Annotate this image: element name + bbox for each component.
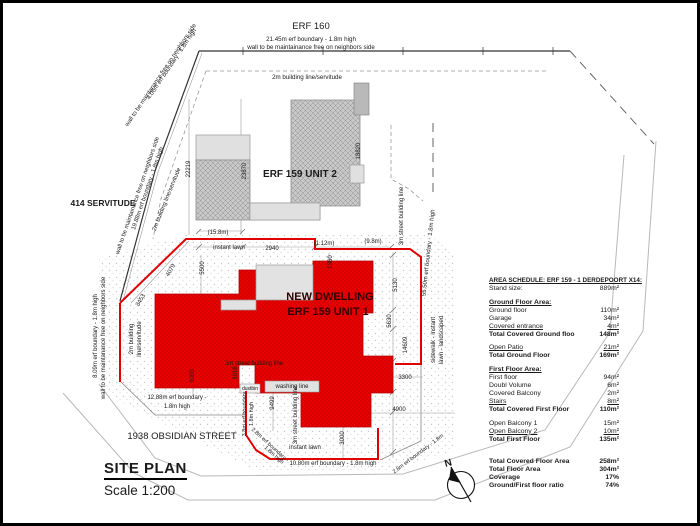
area-schedule-title: AREA SCHEDULE: ERF 159 - 1 DERDEPOORT X1… bbox=[489, 276, 619, 285]
plan-label: 10.80m erf boundary - 1.8m high bbox=[289, 461, 376, 467]
schedule-row: First floor94m² bbox=[489, 374, 619, 382]
plan-label: 414 SERVITUDE bbox=[70, 198, 135, 208]
plan-label: washing line bbox=[274, 384, 309, 390]
schedule-row-label: Open Balcony 2 bbox=[489, 428, 537, 436]
schedule-row: Stairs8m² bbox=[489, 398, 619, 406]
plan-label: 23870 bbox=[242, 162, 248, 179]
plan-label: lawn - landscaped bbox=[439, 316, 445, 364]
plan-label: wall to be maintanance free on neighbors… bbox=[101, 276, 107, 400]
schedule-row-label: Total Covered First Floor bbox=[489, 406, 569, 414]
plan-label: sidewalk - instant bbox=[431, 317, 437, 363]
plan-label: 3016 bbox=[233, 366, 239, 380]
schedule-row: Stand size:889m² bbox=[489, 285, 619, 293]
plan-label: ERF 159 UNIT 1 bbox=[287, 306, 368, 318]
plan-label: 3m street building line bbox=[293, 385, 299, 444]
plan-label: 5630 bbox=[387, 314, 393, 328]
schedule-row: Ground Floor Area: bbox=[489, 299, 619, 307]
schedule-row: Garage34m² bbox=[489, 315, 619, 323]
schedule-row-label: Stand size: bbox=[489, 285, 523, 293]
schedule-row-label: Doubl Volume bbox=[489, 382, 531, 390]
schedule-row: Covered Balcony2m² bbox=[489, 390, 619, 398]
page-title: SITE PLAN bbox=[104, 460, 187, 480]
plan-label: 1938 OBSIDIAN STREET bbox=[127, 431, 236, 442]
plan-label: 18820 bbox=[356, 142, 362, 159]
site-plan-page: ERF 16021.45m erf boundary - 1.8m highwa… bbox=[0, 0, 700, 526]
schedule-row-label: Total First Floor bbox=[489, 436, 540, 444]
schedule-row: Covered entrance4m² bbox=[489, 323, 619, 331]
schedule-row-label: Coverage bbox=[489, 474, 520, 482]
plan-label: ERF 160 bbox=[292, 21, 330, 32]
plan-label: wall to be maintainance free on neighbor… bbox=[246, 44, 375, 51]
schedule-row-value: 21m² bbox=[604, 344, 620, 352]
schedule-row-value: 6m² bbox=[607, 382, 619, 390]
plan-label: 3000 bbox=[190, 369, 196, 383]
schedule-row-label: Garage bbox=[489, 315, 512, 323]
schedule-row-label: Total Covered Ground floo bbox=[489, 331, 575, 339]
plan-label: wall to be maintanance free on neighbors… bbox=[124, 22, 198, 128]
schedule-row-label: Ground floor bbox=[489, 307, 527, 315]
schedule-row: Total Covered Floor Area258m² bbox=[489, 458, 619, 466]
schedule-row-value: 4m² bbox=[607, 323, 619, 331]
schedule-row: Coverage17% bbox=[489, 474, 619, 482]
schedule-row: Doubl Volume6m² bbox=[489, 382, 619, 390]
schedule-row-label: Ground/First floor ratio bbox=[489, 482, 564, 490]
schedule-row-label: Open Patio bbox=[489, 344, 523, 352]
plan-label: 2m building line/servitude bbox=[152, 167, 183, 233]
schedule-row-label: Ground Floor Area: bbox=[489, 299, 551, 307]
schedule-row-label: Total Ground Floor bbox=[489, 352, 550, 360]
title-block: SITE PLAN Scale 1:200 bbox=[104, 460, 187, 498]
schedule-row-value: 17% bbox=[605, 474, 619, 482]
compass bbox=[448, 467, 475, 502]
plan-label: (1.12m) bbox=[314, 241, 335, 247]
plan-label: 2m building bbox=[129, 324, 135, 355]
schedule-row-value: 110m² bbox=[600, 406, 619, 414]
plan-label: NEW DWELLING bbox=[286, 291, 373, 303]
schedule-row: Open Patio21m² bbox=[489, 344, 619, 352]
plan-label: 9499 bbox=[270, 396, 276, 410]
schedule-row: Open Balcony 115m² bbox=[489, 420, 619, 428]
schedule-row-value: 34m² bbox=[604, 315, 620, 323]
plan-label: 3300 bbox=[398, 375, 412, 381]
plan-label: 1360 bbox=[328, 255, 334, 269]
plan-label: (15.8m) bbox=[208, 230, 229, 236]
plan-label: 2m building line/servitude bbox=[272, 74, 342, 81]
schedule-row-value: 258m² bbox=[599, 458, 619, 466]
schedule-row-value: 110m² bbox=[600, 307, 619, 315]
schedule-row-label: Stairs bbox=[489, 398, 506, 406]
scale-label: Scale 1:200 bbox=[104, 483, 187, 498]
plan-label: line/servitude bbox=[137, 321, 143, 357]
plan-label: 22219 bbox=[186, 160, 192, 177]
schedule-row: Open Balcony 210m² bbox=[489, 428, 619, 436]
schedule-row-label: Covered entrance bbox=[489, 323, 543, 331]
plan-label: 4900 bbox=[392, 407, 406, 413]
schedule-row-label: Total Covered Floor Area bbox=[489, 458, 569, 466]
area-schedule-rows: Stand size:889m²Ground Floor Area:Ground… bbox=[489, 285, 619, 490]
plan-label: ERF 159 UNIT 2 bbox=[263, 169, 337, 180]
schedule-row-label: Open Balcony 1 bbox=[489, 420, 537, 428]
schedule-row-value: 169m² bbox=[599, 352, 619, 360]
plan-label: 8.09m erf boundary - 1.8m high bbox=[93, 294, 99, 378]
plan-label: 12.88m erf boundary - bbox=[147, 395, 206, 401]
schedule-row-value: 148m² bbox=[599, 331, 619, 339]
schedule-row: Ground/First floor ratio74% bbox=[489, 482, 619, 490]
schedule-row-value: 15m² bbox=[604, 420, 620, 428]
unit2-building bbox=[196, 83, 369, 220]
schedule-row-value: 10m² bbox=[604, 428, 620, 436]
plan-label: instant lawn bbox=[289, 445, 321, 451]
schedule-row: Total Covered First Floor110m² bbox=[489, 406, 619, 414]
plan-label: 5130 bbox=[393, 278, 399, 292]
plan-label: wall to be maintainance free on neighbor… bbox=[115, 136, 162, 257]
schedule-row-label: First Floor Area: bbox=[489, 366, 542, 374]
schedule-row-value: 304m² bbox=[599, 466, 619, 474]
schedule-row-value: 8m² bbox=[607, 398, 619, 406]
plan-label: 14609 bbox=[403, 336, 409, 353]
plan-label: 3.8m erf boundary bbox=[242, 391, 248, 436]
plan-label: 5500 bbox=[200, 261, 206, 275]
schedule-row: Total First Floor135m² bbox=[489, 436, 619, 444]
schedule-row bbox=[489, 443, 619, 458]
area-schedule-table: AREA SCHEDULE: ERF 159 - 1 DERDEPOORT X1… bbox=[489, 276, 619, 490]
schedule-row-value: 2m² bbox=[607, 390, 619, 398]
schedule-row: Total Ground Floor169m² bbox=[489, 352, 619, 360]
erf-boundary-longdash bbox=[433, 51, 654, 193]
plan-label: 1.8m high bbox=[249, 402, 255, 426]
schedule-row: Total Covered Ground floo148m² bbox=[489, 331, 619, 339]
schedule-row-value: 889m² bbox=[600, 285, 619, 293]
schedule-row-value: 94m² bbox=[604, 374, 620, 382]
schedule-row: Total Floor Area304m² bbox=[489, 466, 619, 474]
schedule-row-label: Total Floor Area bbox=[489, 466, 540, 474]
schedule-row-label: Covered Balcony bbox=[489, 390, 541, 398]
patio-step-rect bbox=[221, 300, 256, 310]
plan-label: (9.8m) bbox=[364, 239, 381, 245]
plan-label: dustbin bbox=[242, 386, 258, 392]
plan-label: 1.8m high bbox=[164, 404, 190, 410]
plan-label: 3m street building line bbox=[399, 186, 405, 245]
schedule-row-label: First floor bbox=[489, 374, 517, 382]
plan-label: instant lawn bbox=[213, 245, 245, 251]
schedule-row: Ground floor110m² bbox=[489, 307, 619, 315]
schedule-row-value: 135m² bbox=[599, 436, 619, 444]
plan-label: 21.45m erf boundary - 1.8m high bbox=[266, 36, 356, 43]
schedule-row-value: 74% bbox=[605, 482, 619, 490]
plan-label: 2940 bbox=[265, 246, 279, 252]
plan-label: 3000 bbox=[340, 431, 346, 445]
schedule-row: First Floor Area: bbox=[489, 366, 619, 374]
plan-label: 3m street building line bbox=[225, 361, 284, 367]
